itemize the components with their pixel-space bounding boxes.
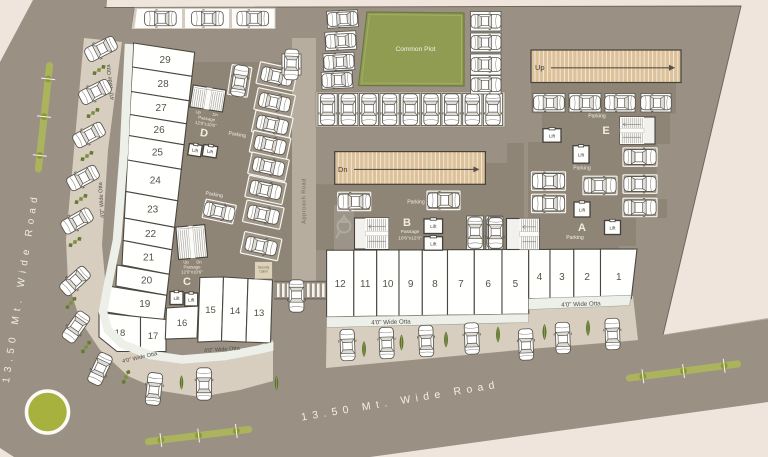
- svg-text:13: 13: [254, 308, 265, 319]
- svg-text:5: 5: [513, 279, 519, 290]
- svg-text:26: 26: [154, 125, 166, 136]
- svg-text:15: 15: [205, 305, 216, 316]
- svg-text:2: 2: [584, 272, 590, 283]
- svg-text:24: 24: [150, 176, 162, 187]
- svg-text:19: 19: [139, 299, 151, 310]
- svg-text:28: 28: [158, 79, 170, 90]
- svg-text:B: B: [403, 217, 411, 229]
- svg-text:Lift: Lift: [430, 241, 437, 246]
- svg-text:Lift: Lift: [173, 296, 180, 301]
- svg-text:14: 14: [230, 306, 241, 317]
- svg-text:12: 12: [335, 279, 347, 290]
- svg-text:Common Plot: Common Plot: [396, 46, 436, 53]
- svg-text:E: E: [602, 125, 609, 137]
- svg-text:Cabin: Cabin: [259, 270, 268, 274]
- svg-text:Parking: Parking: [573, 166, 591, 172]
- svg-text:16: 16: [177, 318, 188, 329]
- svg-text:6: 6: [485, 279, 491, 290]
- svg-text:8: 8: [432, 279, 438, 290]
- svg-text:Lift: Lift: [579, 207, 586, 212]
- svg-text:20: 20: [141, 275, 153, 286]
- svg-text:Lift: Lift: [430, 224, 437, 229]
- svg-text:10'6"x12'0": 10'6"x12'0": [398, 236, 422, 242]
- svg-text:Parking: Parking: [566, 235, 584, 241]
- svg-text:Passage: Passage: [401, 229, 420, 235]
- svg-text:Lift: Lift: [188, 297, 195, 302]
- svg-text:Lift: Lift: [549, 133, 556, 138]
- svg-text:C: C: [183, 276, 191, 288]
- svg-text:29: 29: [160, 55, 172, 66]
- svg-text:25: 25: [152, 148, 164, 159]
- svg-text:Lift: Lift: [609, 225, 616, 230]
- svg-text:4'0" Wide Otta: 4'0" Wide Otta: [561, 300, 601, 308]
- svg-text:Up: Up: [535, 63, 545, 72]
- svg-text:4: 4: [537, 272, 543, 283]
- svg-text:21: 21: [143, 253, 155, 264]
- svg-text:3: 3: [559, 272, 565, 283]
- svg-text:7: 7: [458, 279, 464, 290]
- svg-text:22: 22: [145, 229, 157, 240]
- svg-text:A: A: [578, 222, 586, 234]
- svg-text:Approach Road: Approach Road: [302, 178, 308, 223]
- svg-text:11: 11: [360, 279, 371, 290]
- svg-text:23: 23: [147, 205, 159, 216]
- svg-text:Dn: Dn: [338, 165, 348, 174]
- svg-text:1: 1: [616, 272, 622, 283]
- svg-text:4'0" Wide Otta: 4'0" Wide Otta: [371, 318, 411, 326]
- svg-text:Lift: Lift: [578, 152, 585, 157]
- svg-text:Parking: Parking: [588, 114, 606, 120]
- svg-text:9: 9: [408, 279, 414, 290]
- svg-text:12'0"x10'6": 12'0"x10'6": [181, 270, 203, 275]
- svg-text:27: 27: [156, 103, 168, 114]
- svg-text:Parking: Parking: [407, 200, 425, 206]
- svg-text:10: 10: [382, 279, 394, 290]
- svg-text:17: 17: [148, 331, 159, 342]
